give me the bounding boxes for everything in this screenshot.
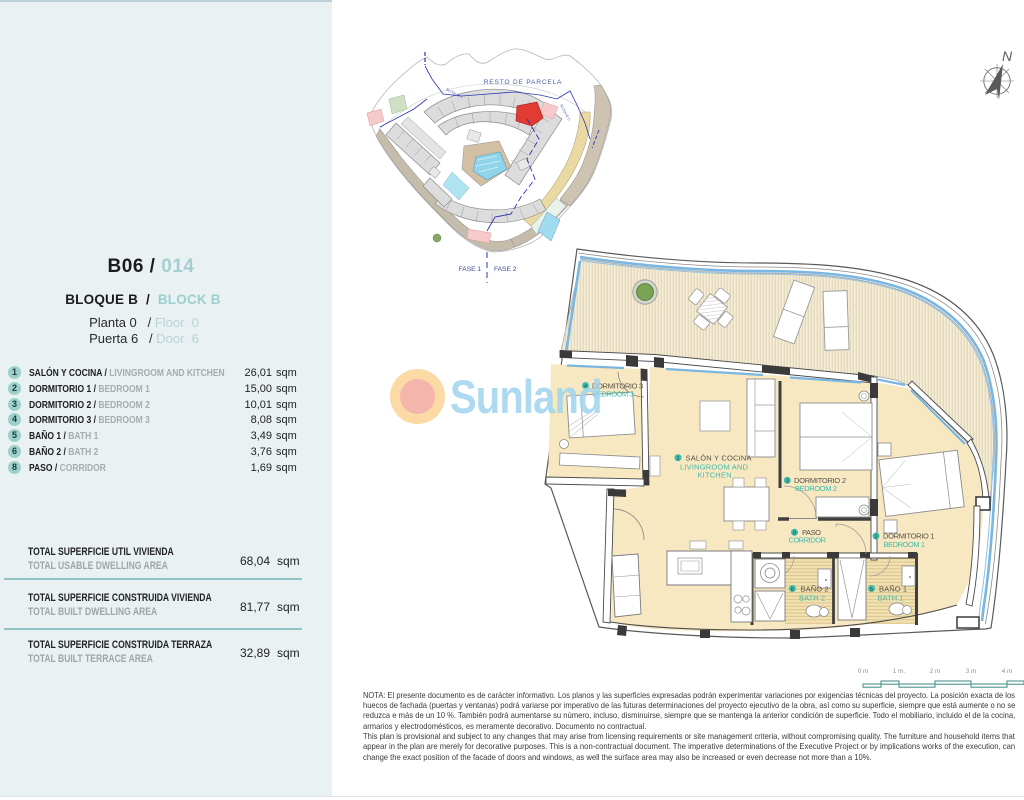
svg-text:2: 2 — [874, 534, 877, 540]
svg-text:1: 1 — [676, 456, 679, 462]
svg-text:3 m: 3 m — [966, 668, 977, 675]
svg-text:BAÑO 1: BAÑO 1 — [879, 584, 907, 593]
svg-text:4 m: 4 m — [1002, 668, 1013, 675]
svg-text:5: 5 — [870, 587, 873, 593]
svg-text:BATH 2: BATH 2 — [799, 594, 825, 603]
svg-text:3: 3 — [786, 479, 789, 485]
svg-text:FASE 1: FASE 1 — [459, 266, 482, 273]
svg-text:KITCHEN: KITCHEN — [698, 471, 732, 480]
svg-text:CORRIDOR: CORRIDOR — [789, 536, 827, 545]
svg-text:BATH 1: BATH 1 — [878, 594, 904, 603]
svg-text:RESTO DE PARCELA: RESTO DE PARCELA — [484, 79, 563, 86]
svg-text:BEDROOM 1: BEDROOM 1 — [884, 540, 926, 549]
svg-text:FASE 2: FASE 2 — [494, 266, 517, 273]
svg-text:2 m: 2 m — [930, 668, 941, 675]
svg-text:BEDROOM 2: BEDROOM 2 — [795, 484, 837, 493]
svg-text:BAÑO 2: BAÑO 2 — [801, 584, 829, 593]
svg-text:1 m.: 1 m. — [893, 668, 905, 675]
svg-text:6: 6 — [791, 587, 794, 593]
svg-text:SALÓN Y COCINA: SALÓN Y COCINA — [686, 454, 752, 463]
svg-text:N: N — [1002, 48, 1013, 64]
svg-text:0 m: 0 m — [858, 668, 869, 675]
